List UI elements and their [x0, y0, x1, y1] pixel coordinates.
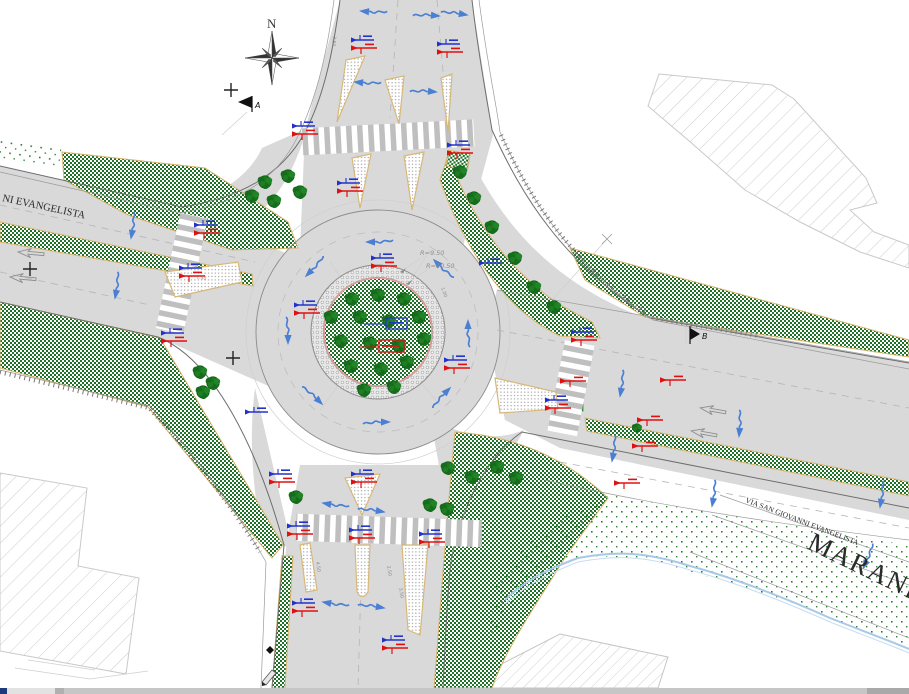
- compass-rose: N: [245, 16, 299, 85]
- scrollbar-corner-chip: [0, 688, 7, 694]
- drawing-viewport: 4.502.503.503.501.00 R=9.50 R=10.50 1.50…: [0, 0, 909, 694]
- compass-north-label: N: [267, 16, 277, 31]
- scrollbar-page-area[interactable]: [7, 688, 55, 694]
- section-a-label: A: [254, 101, 260, 110]
- section-marker-a: A: [222, 96, 260, 135]
- scrollbar-right-button[interactable]: [867, 688, 909, 694]
- roundabout-central-island: [311, 265, 445, 399]
- svg-text:3.50: 3.50: [330, 36, 337, 47]
- site-plan-canvas: 4.502.503.503.501.00 R=9.50 R=10.50 1.50…: [0, 0, 909, 688]
- scrollbar-left-button[interactable]: [55, 688, 64, 694]
- radius-outer-label: R=10.50: [426, 262, 455, 270]
- section-b-label: B: [702, 332, 708, 341]
- horizontal-scrollbar-track[interactable]: [64, 688, 867, 694]
- radius-inner-label: R=9.50: [420, 249, 444, 257]
